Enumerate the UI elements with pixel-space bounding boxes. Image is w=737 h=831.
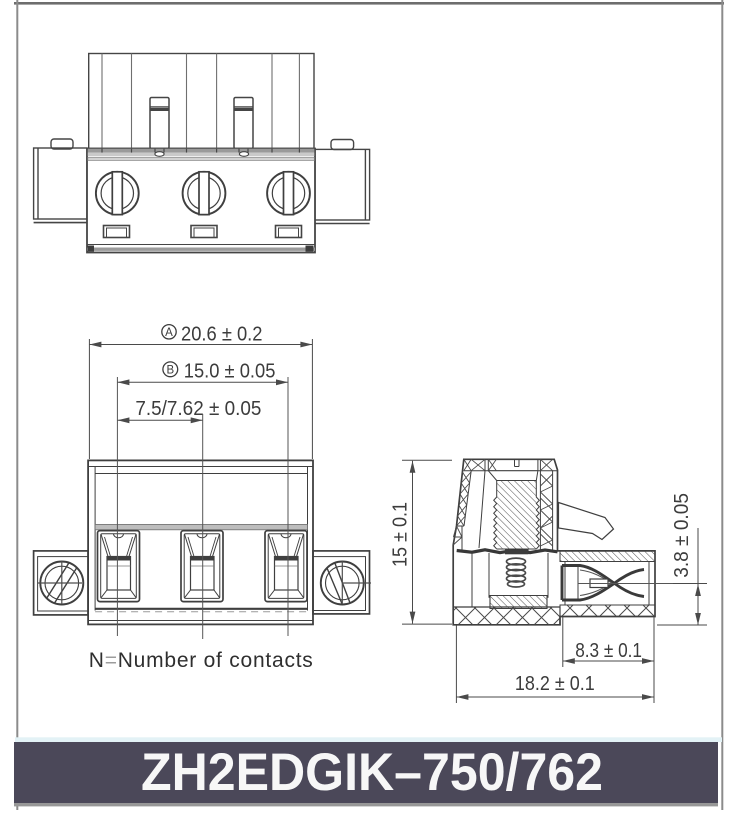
svg-text:B: B bbox=[166, 365, 174, 377]
svg-text:15 ± 0.1: 15 ± 0.1 bbox=[390, 502, 412, 567]
svg-text:8.3 ± 0.1: 8.3 ± 0.1 bbox=[575, 640, 642, 662]
svg-text:18.2 ± 0.1: 18.2 ± 0.1 bbox=[515, 673, 595, 695]
svg-text:20.6 ± 0.2: 20.6 ± 0.2 bbox=[181, 324, 263, 346]
svg-text:N=Number of contacts: N=Number of contacts bbox=[89, 649, 313, 672]
svg-text:A: A bbox=[165, 327, 173, 339]
svg-text:ZH2EDGIK–750/762: ZH2EDGIK–750/762 bbox=[141, 743, 603, 802]
svg-text:15.0 ± 0.05: 15.0 ± 0.05 bbox=[184, 360, 276, 382]
svg-text:7.5/7.62 ± 0.05: 7.5/7.62 ± 0.05 bbox=[135, 398, 261, 420]
svg-text:3.8 ± 0.05: 3.8 ± 0.05 bbox=[671, 493, 693, 578]
